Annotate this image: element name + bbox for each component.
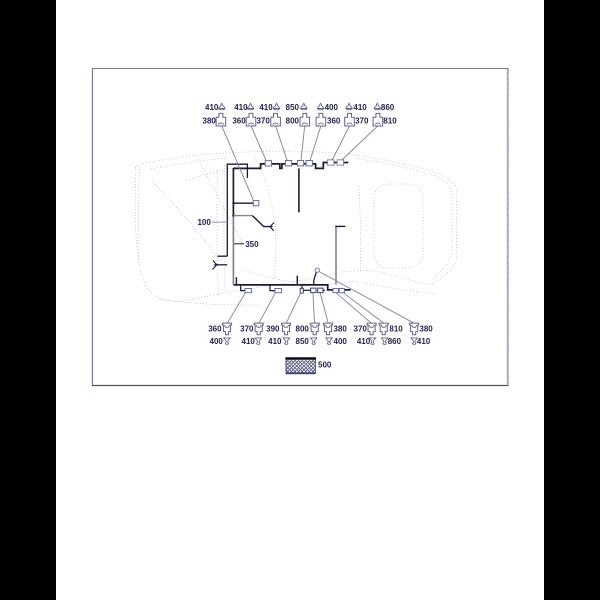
svg-text:860: 860: [388, 337, 402, 346]
svg-text:390: 390: [266, 324, 280, 333]
svg-text:370: 370: [240, 324, 254, 333]
svg-text:370: 370: [354, 324, 368, 333]
svg-text:800: 800: [296, 324, 310, 333]
svg-text:380: 380: [203, 117, 217, 126]
svg-text:810: 810: [389, 324, 403, 333]
svg-text:380: 380: [334, 324, 348, 333]
svg-text:850: 850: [286, 103, 300, 112]
svg-text:400: 400: [210, 337, 224, 346]
svg-text:410: 410: [234, 103, 248, 112]
svg-text:360: 360: [232, 117, 246, 126]
svg-text:860: 860: [381, 103, 395, 112]
svg-text:370: 370: [355, 117, 369, 126]
svg-text:500: 500: [318, 361, 332, 370]
svg-text:350: 350: [245, 240, 259, 249]
svg-text:410: 410: [353, 103, 367, 112]
svg-text:410: 410: [357, 337, 371, 346]
svg-text:410: 410: [242, 337, 256, 346]
svg-text:360: 360: [327, 117, 341, 126]
svg-text:410: 410: [205, 103, 219, 112]
svg-text:850: 850: [296, 337, 310, 346]
svg-text:410: 410: [417, 337, 431, 346]
svg-text:360: 360: [208, 324, 222, 333]
svg-text:810: 810: [383, 117, 397, 126]
svg-text:410: 410: [268, 337, 282, 346]
svg-text:800: 800: [286, 117, 300, 126]
svg-text:400: 400: [334, 337, 348, 346]
svg-text:410: 410: [259, 103, 273, 112]
svg-text:370: 370: [256, 117, 270, 126]
svg-text:400: 400: [325, 103, 339, 112]
svg-text:100: 100: [197, 218, 211, 227]
svg-text:380: 380: [419, 324, 433, 333]
